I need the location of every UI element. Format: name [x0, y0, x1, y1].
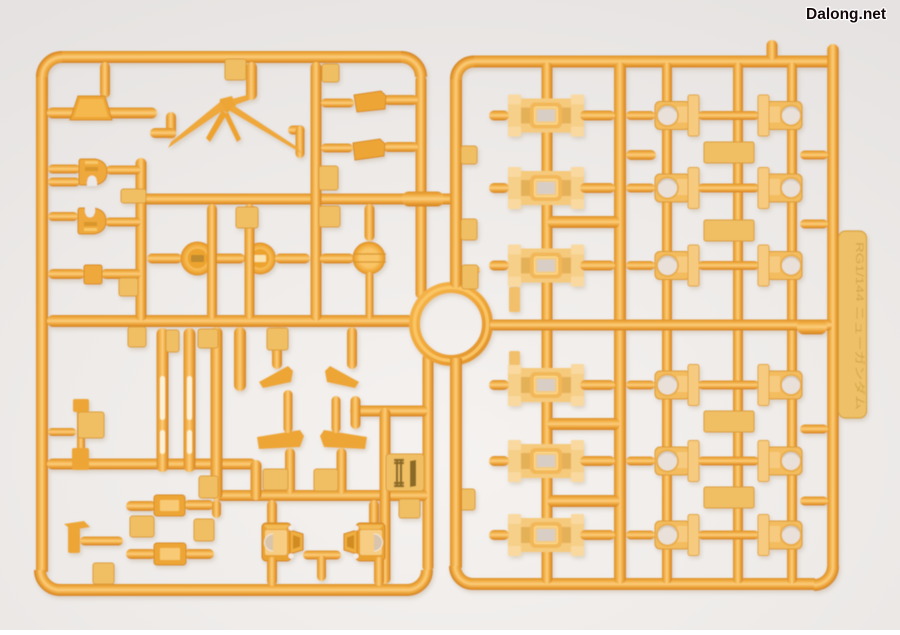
svg-text:RG1/144 ニューガンダム: RG1/144 ニューガンダム — [853, 242, 867, 410]
svg-text:Dalong.net: Dalong.net — [806, 6, 886, 23]
